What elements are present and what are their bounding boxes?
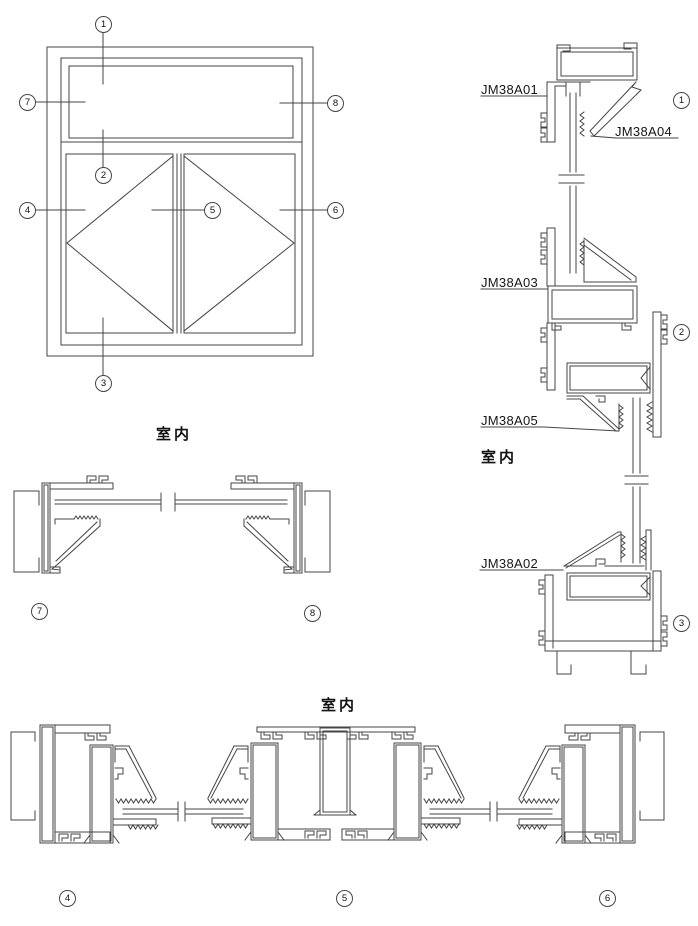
sash-rail bbox=[567, 363, 650, 393]
section-7-profile bbox=[14, 476, 113, 573]
transom-tube bbox=[548, 286, 637, 323]
profile-label-jm38a05: JM38A05 bbox=[481, 413, 538, 428]
outer-fin bbox=[14, 491, 39, 572]
head-section bbox=[481, 43, 678, 273]
caption-room-elevation: 室内 bbox=[150, 423, 198, 444]
frame-wall-right bbox=[653, 571, 661, 651]
frame-wall bbox=[653, 312, 661, 437]
callout-elevation-6: 6 bbox=[327, 202, 344, 219]
outer-fin bbox=[11, 732, 35, 820]
callout-section-2: 2 bbox=[673, 324, 690, 341]
section-6-profile bbox=[517, 725, 664, 843]
glass-pane bbox=[625, 398, 648, 563]
callout-elevation-7: 7 bbox=[19, 94, 36, 111]
callout-section-6: 6 bbox=[599, 890, 616, 907]
section-5-right bbox=[342, 743, 464, 840]
glazing-bead bbox=[584, 238, 636, 282]
section-4-profile bbox=[11, 725, 158, 843]
sash-stile bbox=[251, 743, 278, 840]
profile-label-jm38a01: JM38A01 bbox=[481, 82, 538, 97]
caption-room-bottom: 室内 bbox=[321, 694, 357, 715]
frame-wall-left bbox=[545, 575, 553, 648]
profile-label-jm38a04: JM38A04 bbox=[615, 124, 672, 139]
gasket-strip bbox=[646, 530, 651, 570]
sill-section bbox=[480, 530, 667, 674]
sash-stile bbox=[90, 745, 113, 843]
right-sash-opening-symbol bbox=[184, 156, 294, 331]
callout-section-4: 4 bbox=[59, 890, 76, 907]
callout-section-5: 5 bbox=[336, 890, 353, 907]
callout-section-1: 1 bbox=[673, 92, 690, 109]
glazing-foot bbox=[212, 818, 251, 824]
technical-drawing-canvas bbox=[0, 0, 698, 926]
sash-rail bbox=[567, 573, 650, 600]
callout-section-3: 3 bbox=[673, 615, 690, 632]
callout-elevation-5: 5 bbox=[204, 202, 221, 219]
frame-tube bbox=[557, 48, 637, 80]
section-5-left bbox=[208, 743, 330, 840]
glass-pane bbox=[559, 93, 584, 273]
window-elevation bbox=[35, 32, 327, 375]
callout-elevation-1: 1 bbox=[95, 16, 112, 33]
caption-room-right: 室内 bbox=[481, 446, 517, 467]
profile-label-jm38a03: JM38A03 bbox=[481, 275, 538, 290]
fixed-glass-section bbox=[55, 493, 287, 511]
drawing-sheet: { "page": { "background": "#ffffff", "li… bbox=[0, 0, 698, 926]
mullion-tube bbox=[320, 728, 350, 815]
callout-elevation-3: 3 bbox=[95, 375, 112, 392]
meeting-stile bbox=[177, 154, 181, 333]
callout-elevation-4: 4 bbox=[19, 202, 36, 219]
callout-section-7: 7 bbox=[31, 603, 48, 620]
callout-elevation-8: 8 bbox=[327, 95, 344, 112]
left-sash-opening-symbol bbox=[67, 156, 173, 331]
glazing-bead bbox=[564, 532, 621, 568]
left-sash bbox=[66, 154, 173, 333]
section-8-profile bbox=[231, 476, 330, 573]
right-sash bbox=[184, 154, 295, 333]
callout-elevation-2: 2 bbox=[95, 167, 112, 184]
glazing-foot bbox=[113, 819, 156, 825]
profile-label-jm38a02: JM38A02 bbox=[481, 556, 538, 571]
callout-section-8: 8 bbox=[304, 605, 321, 622]
section-5-center bbox=[257, 727, 415, 815]
frame-bottom bbox=[545, 641, 661, 651]
